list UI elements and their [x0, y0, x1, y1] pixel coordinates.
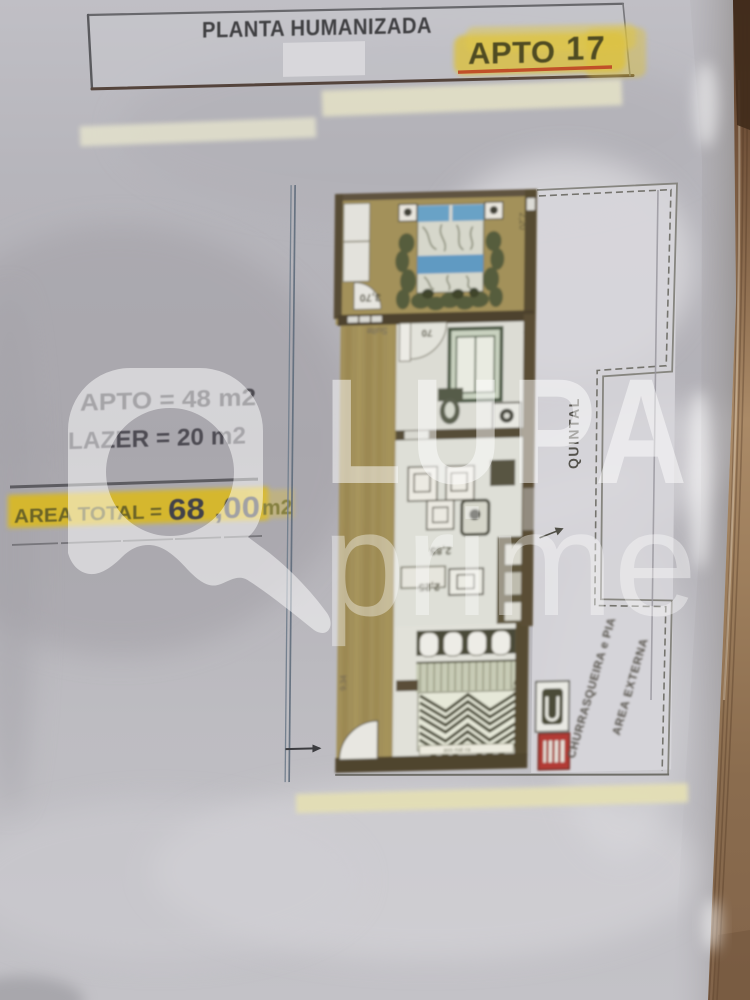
svg-text:prime: prime: [322, 479, 697, 647]
svg-text:70: 70: [421, 327, 433, 338]
svg-text:3,70: 3,70: [359, 291, 381, 304]
svg-text:9,34: 9,34: [339, 674, 348, 690]
svg-text:APTO: APTO: [468, 34, 556, 71]
svg-text:PLANTA HUMANIZADA: PLANTA HUMANIZADA: [202, 13, 432, 43]
svg-text:Suíte: Suíte: [367, 326, 388, 337]
svg-text:ass·nat·ra: ass·nat·ra: [443, 748, 471, 755]
svg-text:17: 17: [566, 29, 607, 67]
svg-text:2,20: 2,20: [518, 212, 528, 230]
svg-text:4,20: 4,20: [511, 680, 520, 696]
